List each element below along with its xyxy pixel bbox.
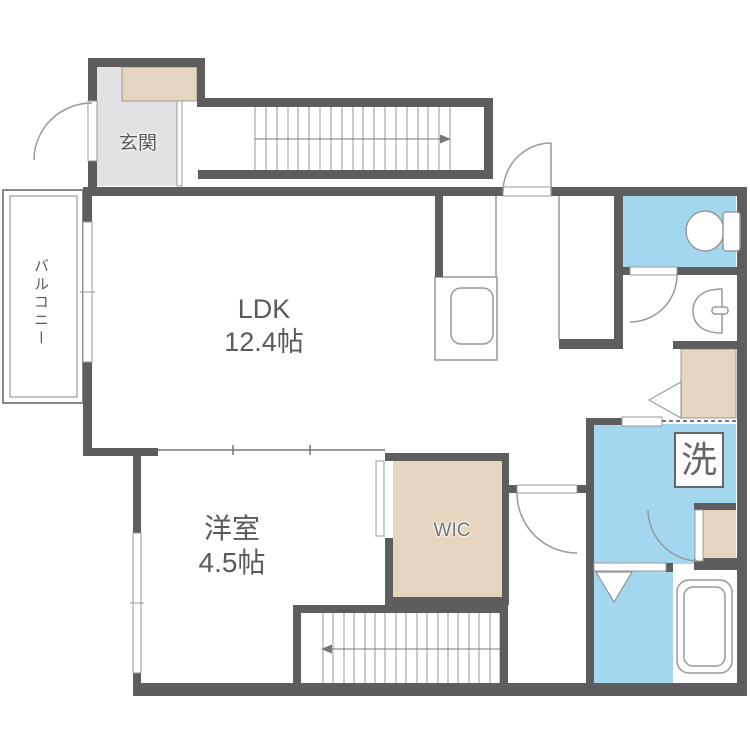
floor-plan: LDK 12.4帖 洋室 4.5帖 玄関 バルコニー WIC 洗	[0, 0, 750, 750]
toilet-door-leaf	[630, 267, 677, 275]
washroom-closet-floor	[681, 349, 736, 418]
ldk-door-opening	[503, 187, 551, 196]
ldk-area: 12.4帖	[179, 326, 349, 359]
laundry-closet-door-leaf	[695, 510, 703, 561]
stairs-lower	[321, 612, 500, 683]
western-room-name: 洋室	[147, 512, 317, 546]
floor-fills	[97, 67, 736, 685]
stair-arrow-right-icon	[440, 135, 451, 144]
wic-label: WIC	[398, 520, 506, 542]
entry-door-arc	[34, 103, 92, 160]
toilet-door-arc	[630, 275, 677, 322]
stairs-upper	[255, 107, 451, 170]
floor-plan-drawing	[0, 0, 750, 750]
bath-slide-door	[594, 563, 666, 571]
bathtub-icon	[677, 580, 732, 673]
shoe-cabinet	[122, 67, 197, 101]
entry-door-leaf	[88, 101, 97, 161]
kitchen-counter	[435, 196, 497, 360]
ldk-name: LDK	[179, 293, 349, 326]
laundry-closet-floor	[703, 510, 736, 558]
laundry-unit-badge: 洗	[674, 432, 724, 488]
stair-treads	[323, 612, 500, 683]
wic-door-leaf	[376, 461, 384, 536]
ldk-room-label: LDK 12.4帖	[179, 293, 349, 359]
western-room-label: 洋室 4.5帖	[147, 512, 317, 580]
entrance-label: 玄関	[98, 128, 178, 155]
laundry-slide-door	[622, 417, 662, 426]
ldk-door-arc	[503, 143, 551, 192]
closet-fold-door-icon	[649, 382, 681, 418]
kitchen-sink-icon	[451, 288, 493, 344]
washbasin-icon	[693, 289, 728, 333]
hall-door-leaf	[517, 485, 577, 493]
toilet-icon	[686, 211, 740, 251]
balcony-label: バルコニー	[30, 258, 51, 358]
western-room-area: 4.5帖	[147, 546, 317, 580]
hall-door-arc	[517, 493, 577, 553]
room-partition-line	[158, 445, 385, 455]
